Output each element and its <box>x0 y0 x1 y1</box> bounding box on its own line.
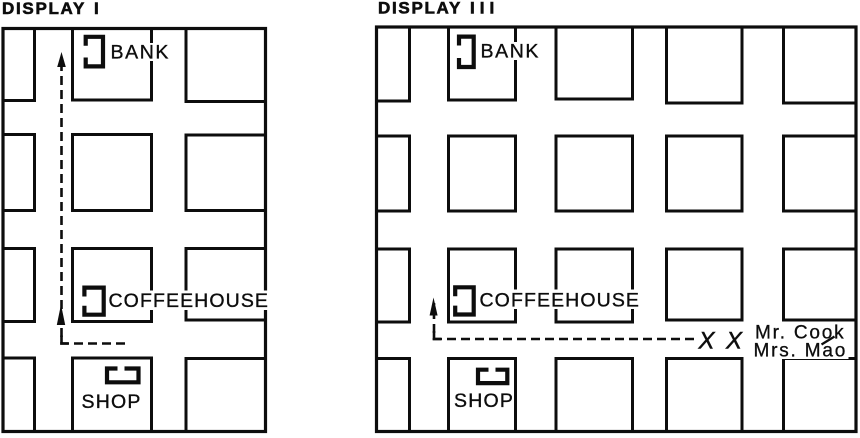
svg-text:III: III <box>470 0 499 18</box>
svg-text:DISPLAY: DISPLAY <box>2 0 86 18</box>
svg-text:BANK: BANK <box>111 42 171 64</box>
svg-text:Mrs. Mao: Mrs. Mao <box>754 341 848 362</box>
svg-text:BANK: BANK <box>481 41 541 63</box>
svg-text:COFFEEHOUSE: COFFEEHOUSE <box>109 290 270 312</box>
svg-text:COFFEEHOUSE: COFFEEHOUSE <box>480 290 641 312</box>
svg-text:SHOP: SHOP <box>82 391 142 413</box>
svg-text:I: I <box>94 0 100 18</box>
svg-text:DISPLAY: DISPLAY <box>378 0 462 18</box>
svg-text:X: X <box>725 328 743 355</box>
svg-text:X: X <box>698 328 716 355</box>
svg-text:SHOP: SHOP <box>454 390 514 412</box>
